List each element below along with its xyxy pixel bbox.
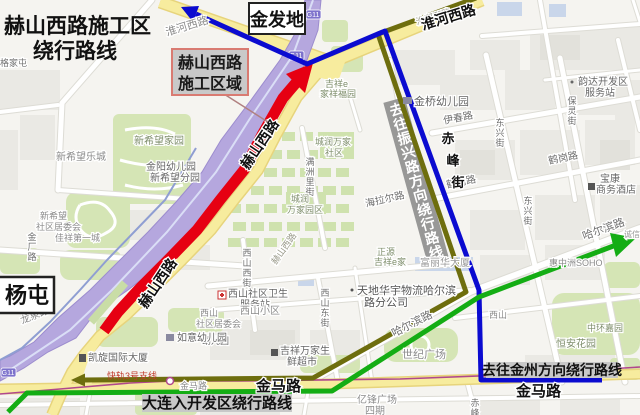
svg-text:天地华宇物流哈尔滨: 天地华宇物流哈尔滨 xyxy=(357,283,456,297)
svg-text:社区居委会: 社区居委会 xyxy=(196,318,241,329)
svg-text:大连入开发区绕行路线: 大连入开发区绕行路线 xyxy=(142,394,292,412)
svg-text:社区居委会: 社区居委会 xyxy=(36,221,81,232)
svg-text:街: 街 xyxy=(242,277,251,288)
svg-text:金马路: 金马路 xyxy=(515,382,562,400)
svg-text:东: 东 xyxy=(523,195,532,206)
svg-text:格家屯: 格家屯 xyxy=(0,57,27,68)
svg-text:中环嘉园: 中环嘉园 xyxy=(587,322,623,333)
svg-text:街: 街 xyxy=(495,137,504,148)
svg-text:山: 山 xyxy=(242,258,251,268)
svg-text:新希望分园: 新希望分园 xyxy=(150,171,200,184)
svg-text:街: 街 xyxy=(450,175,464,190)
svg-text:路分公司: 路分公司 xyxy=(364,296,408,309)
svg-text:亿锋广场: 亿锋广场 xyxy=(357,393,397,406)
svg-text:城润: 城润 xyxy=(291,193,309,204)
svg-text:宝康: 宝康 xyxy=(600,172,620,185)
svg-text:惠中洲SOHO: 惠中洲SOHO xyxy=(549,257,603,268)
svg-text:洲: 洲 xyxy=(305,167,314,177)
svg-text:满: 满 xyxy=(305,157,314,167)
svg-text:金发地: 金发地 xyxy=(249,9,304,30)
svg-text:快轨3号支线: 快轨3号支线 xyxy=(107,370,157,381)
svg-text:服务站: 服务站 xyxy=(585,86,615,99)
svg-text:赫山西路: 赫山西路 xyxy=(178,53,243,72)
svg-text:兴: 兴 xyxy=(523,206,532,216)
svg-text:赤: 赤 xyxy=(470,398,479,408)
svg-text:东: 东 xyxy=(495,117,504,128)
svg-text:吉祥万家生: 吉祥万家生 xyxy=(280,344,330,357)
svg-text:恒安花园: 恒安花园 xyxy=(556,337,596,350)
svg-text:G11: G11 xyxy=(307,12,320,19)
svg-text:韵达开发区: 韵达开发区 xyxy=(578,75,628,88)
svg-text:西山小区: 西山小区 xyxy=(240,305,280,317)
svg-text:西: 西 xyxy=(242,268,251,278)
svg-text:四期: 四期 xyxy=(365,405,385,415)
svg-text:社区: 社区 xyxy=(325,147,343,158)
svg-text:金阳幼儿园: 金阳幼儿园 xyxy=(146,160,196,173)
svg-text:兴: 兴 xyxy=(495,128,504,138)
svg-text:厂: 厂 xyxy=(27,242,36,252)
svg-text:街: 街 xyxy=(523,215,532,226)
svg-text:金马路: 金马路 xyxy=(255,377,302,395)
svg-text:佳祥第一城: 佳祥第一城 xyxy=(55,232,100,243)
svg-text:去往金州方向绕行路线: 去往金州方向绕行路线 xyxy=(482,362,622,378)
svg-text:万家园区: 万家园区 xyxy=(287,204,323,215)
svg-text:鲜超市: 鲜超市 xyxy=(287,355,317,368)
svg-text:路: 路 xyxy=(27,251,36,262)
svg-text:山: 山 xyxy=(320,298,329,308)
svg-text:如意幼儿园: 如意幼儿园 xyxy=(177,331,227,344)
svg-text:峰: 峰 xyxy=(446,153,460,168)
svg-text:吉祥e家: 吉祥e家 xyxy=(374,256,406,267)
svg-text:正源: 正源 xyxy=(377,247,395,257)
svg-text:西: 西 xyxy=(320,288,329,298)
svg-text:绕行路线: 绕行路线 xyxy=(33,39,117,63)
svg-text:G11: G11 xyxy=(2,370,15,377)
svg-text:街: 街 xyxy=(567,115,576,126)
svg-text:凯旋国际大厦: 凯旋国际大厦 xyxy=(88,351,148,364)
svg-text:赤: 赤 xyxy=(441,131,454,146)
svg-text:西山社区卫生: 西山社区卫生 xyxy=(228,287,288,300)
svg-text:保: 保 xyxy=(567,95,576,106)
svg-text:诚信: 诚信 xyxy=(624,229,640,239)
svg-text:施工区域: 施工区域 xyxy=(178,74,242,93)
svg-text:里: 里 xyxy=(305,177,314,187)
svg-text:西山: 西山 xyxy=(489,310,507,320)
svg-text:世纪广场: 世纪广场 xyxy=(402,347,446,361)
svg-text:吉祥e: 吉祥e xyxy=(325,78,348,89)
svg-text:金桥幼儿园: 金桥幼儿园 xyxy=(414,94,469,108)
svg-text:街: 街 xyxy=(320,317,329,328)
svg-text:新希望: 新希望 xyxy=(40,210,67,221)
svg-text:赫山西路施工区: 赫山西路施工区 xyxy=(4,14,151,38)
svg-text:峰: 峰 xyxy=(470,408,479,415)
svg-text:商务酒店: 商务酒店 xyxy=(596,183,636,196)
svg-text:金: 金 xyxy=(27,231,36,242)
svg-text:城润万家: 城润万家 xyxy=(315,136,351,147)
svg-text:金马路: 金马路 xyxy=(180,380,207,391)
svg-text:富丽华大厦: 富丽华大厦 xyxy=(420,256,470,269)
svg-text:杨屯: 杨屯 xyxy=(5,283,49,308)
svg-text:新希望乐城: 新希望乐城 xyxy=(56,150,106,163)
svg-text:新希望家园: 新希望家园 xyxy=(134,134,184,147)
svg-text:西: 西 xyxy=(242,248,251,258)
svg-text:西山: 西山 xyxy=(200,308,218,318)
svg-text:家祥福园: 家祥福园 xyxy=(320,88,356,99)
svg-text:东: 东 xyxy=(320,307,329,318)
svg-text:灵: 灵 xyxy=(567,106,576,116)
